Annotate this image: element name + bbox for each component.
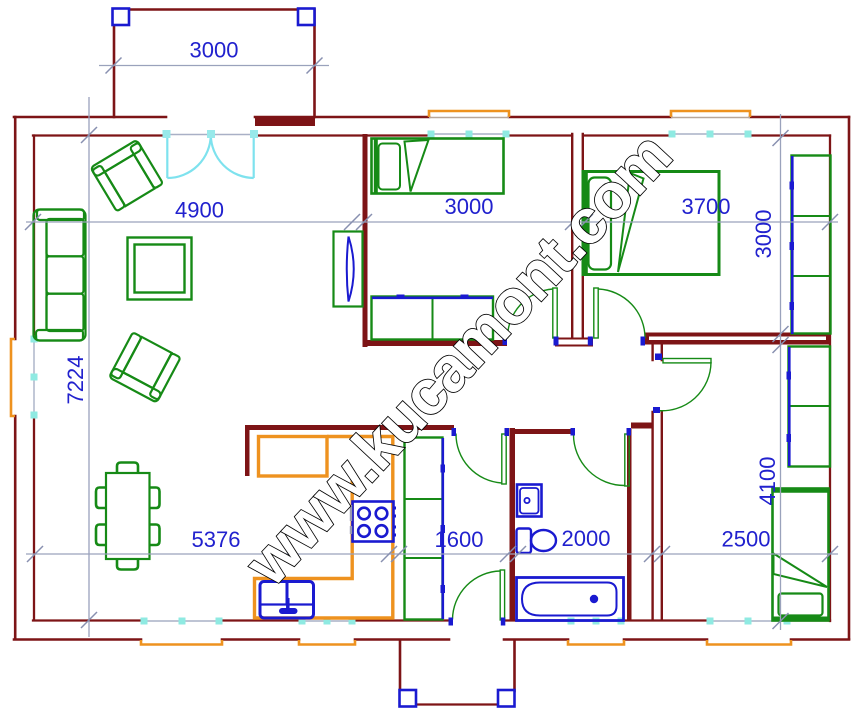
svg-text:7224: 7224 <box>63 356 88 405</box>
svg-text:2000: 2000 <box>562 526 611 551</box>
svg-text:2500: 2500 <box>722 527 771 552</box>
svg-text:3000: 3000 <box>445 194 494 219</box>
svg-text:4100: 4100 <box>755 457 780 506</box>
svg-text:1600: 1600 <box>435 527 484 552</box>
svg-text:4900: 4900 <box>175 198 224 223</box>
svg-text:3000: 3000 <box>190 38 239 63</box>
svg-text:3000: 3000 <box>751 210 776 259</box>
svg-text:3700: 3700 <box>682 194 731 219</box>
